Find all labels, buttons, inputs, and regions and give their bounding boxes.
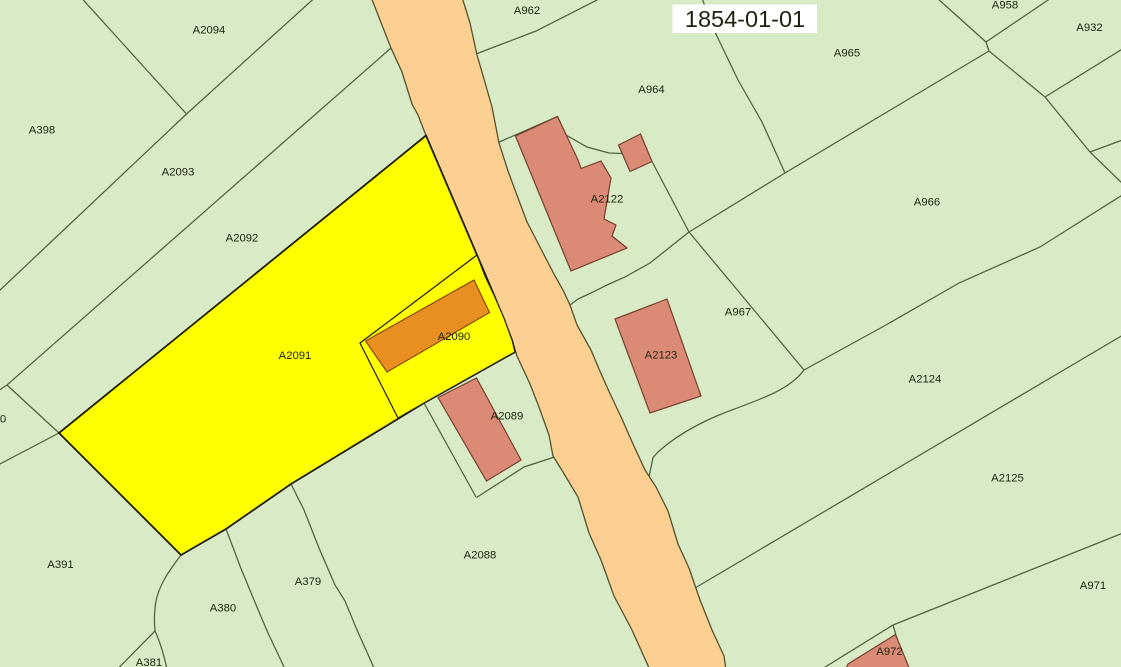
svg-text:A967: A967 [725, 307, 751, 319]
svg-text:A972: A972 [876, 646, 902, 658]
svg-text:A390: A390 [0, 414, 6, 426]
svg-text:A2092: A2092 [226, 233, 259, 245]
svg-text:A966: A966 [914, 197, 940, 209]
svg-text:A381: A381 [136, 657, 162, 667]
svg-text:A379: A379 [295, 576, 321, 588]
svg-text:A2088: A2088 [464, 550, 497, 562]
svg-text:A971: A971 [1080, 580, 1106, 592]
svg-text:A2090: A2090 [438, 331, 471, 343]
svg-text:A2094: A2094 [193, 25, 226, 37]
svg-text:1854-01-01: 1854-01-01 [685, 6, 805, 32]
svg-text:A391: A391 [47, 559, 73, 571]
svg-text:A2093: A2093 [162, 167, 195, 179]
svg-text:A2122: A2122 [591, 194, 624, 206]
svg-text:A932: A932 [1076, 22, 1102, 34]
svg-text:A2089: A2089 [491, 411, 524, 423]
svg-text:A958: A958 [992, 0, 1018, 12]
svg-text:A398: A398 [29, 125, 55, 137]
svg-text:A2124: A2124 [909, 374, 942, 386]
svg-text:A964: A964 [638, 84, 664, 96]
svg-text:A962: A962 [514, 5, 540, 17]
svg-text:A2123: A2123 [645, 350, 678, 362]
svg-text:A2125: A2125 [991, 473, 1024, 485]
svg-text:A965: A965 [834, 48, 860, 60]
svg-text:A2091: A2091 [279, 350, 312, 362]
svg-text:A380: A380 [210, 603, 236, 615]
